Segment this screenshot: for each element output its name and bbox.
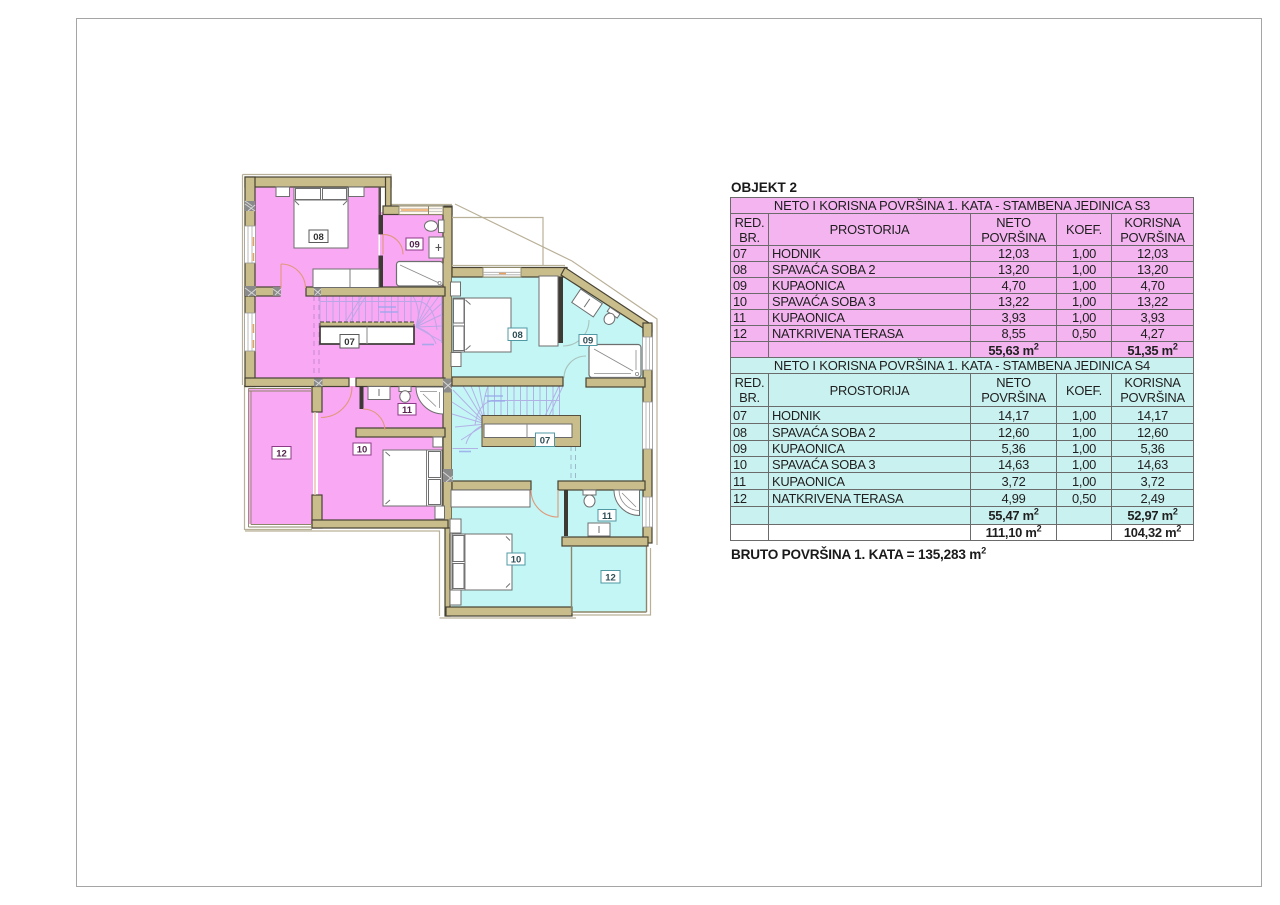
svg-text:08: 08 <box>313 232 324 243</box>
svg-text:07: 07 <box>344 337 355 348</box>
svg-text:09: 09 <box>409 240 420 251</box>
svg-text:12: 12 <box>276 448 287 459</box>
svg-text:12: 12 <box>605 572 616 583</box>
svg-text:08: 08 <box>512 330 523 341</box>
svg-text:07: 07 <box>540 436 551 447</box>
svg-text:10: 10 <box>511 555 522 566</box>
svg-text:09: 09 <box>583 336 594 347</box>
svg-text:11: 11 <box>402 405 413 416</box>
svg-text:11: 11 <box>602 511 613 522</box>
svg-text:10: 10 <box>357 445 368 456</box>
